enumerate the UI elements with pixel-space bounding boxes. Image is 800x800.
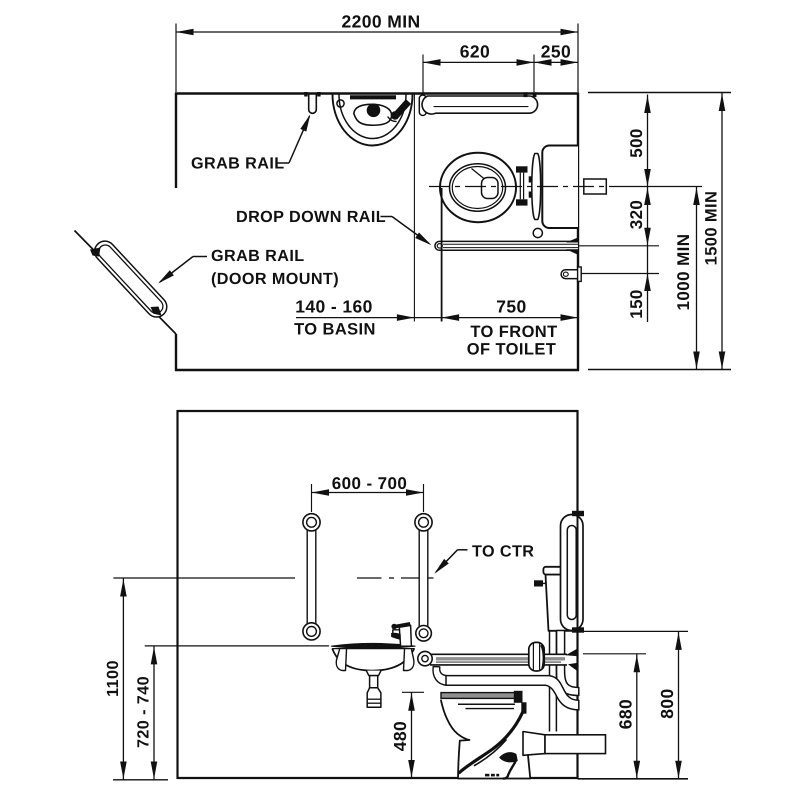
svg-text:720 - 740: 720 - 740 — [135, 676, 153, 748]
svg-text:1500 MIN: 1500 MIN — [703, 191, 721, 266]
svg-text:2200 MIN: 2200 MIN — [341, 12, 420, 32]
svg-text:620: 620 — [460, 42, 490, 62]
svg-text:600 - 700: 600 - 700 — [332, 474, 407, 493]
svg-text:500: 500 — [627, 128, 646, 158]
svg-text:320: 320 — [627, 200, 646, 230]
svg-text:TO BASIN: TO BASIN — [294, 321, 376, 339]
svg-text:GRAB RAIL: GRAB RAIL — [191, 155, 285, 173]
svg-text:TO FRONT: TO FRONT — [470, 323, 557, 341]
svg-text:140 - 160: 140 - 160 — [295, 297, 373, 317]
svg-text:TO CTR: TO CTR — [472, 543, 534, 561]
svg-text:GRAB RAIL: GRAB RAIL — [211, 247, 305, 265]
svg-text:(DOOR MOUNT): (DOOR MOUNT) — [211, 270, 339, 288]
svg-text:1100: 1100 — [104, 660, 122, 697]
svg-text:800: 800 — [657, 688, 677, 718]
svg-text:480: 480 — [390, 721, 410, 751]
svg-text:150: 150 — [627, 289, 646, 319]
svg-text:OF TOILET: OF TOILET — [467, 341, 556, 359]
svg-text:750: 750 — [496, 297, 526, 317]
svg-text:DROP DOWN RAIL: DROP DOWN RAIL — [236, 208, 386, 226]
svg-text:680: 680 — [616, 699, 636, 729]
svg-text:250: 250 — [541, 42, 571, 62]
svg-text:1000 MIN: 1000 MIN — [674, 234, 693, 311]
